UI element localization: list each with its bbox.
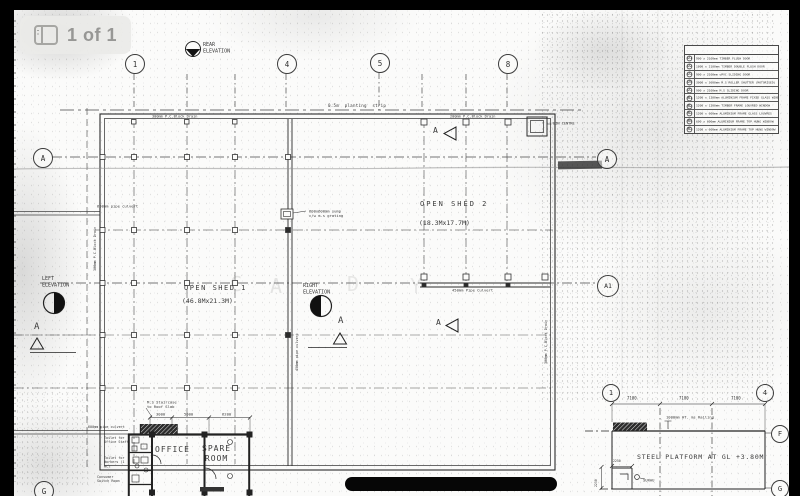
scan-artifacts	[14, 10, 789, 390]
page-indicator-text: 1 of 1	[67, 25, 117, 46]
legend-row: D3900 x 2100mm uPVC SLIDING DOOR	[685, 71, 778, 79]
redaction-bar	[345, 477, 557, 491]
section-markers	[30, 42, 458, 353]
legend-row: W21200 x 1200mm TIMBER FRAME LOUVRED WIN…	[685, 102, 778, 110]
letterbox-top	[0, 0, 800, 10]
door-window-schedule: DOOR & WINDOW SCHEDULE D1900 x 2100mm TI…	[684, 45, 779, 134]
legend-row: W31200 x 600mm ALUMINIUM FRAME GLASS LOU…	[685, 110, 778, 118]
shed2-details	[281, 117, 552, 287]
letterbox-left	[0, 0, 14, 496]
office-block	[128, 408, 252, 496]
legend-row: W11200 x 1200mm ALUMINIUM FRAME FIXED GL…	[685, 94, 778, 102]
legend-row: D43000 x 3600mm M.S ROLLER SHUTTER (MOTO…	[685, 79, 778, 87]
drawing-viewer: REAR ELEVATION0.5m planting strip300mm P…	[0, 0, 800, 496]
steel-platform	[585, 402, 771, 496]
page-indicator[interactable]: 1 of 1	[20, 16, 131, 54]
legend-row: W4600 x 600mm ALUMINIUM FRAME TOP HUNG W…	[685, 118, 778, 126]
legend-rows: D1900 x 2100mm TIMBER FLUSH DOORD21800 x…	[685, 55, 778, 133]
letterbox-right	[789, 0, 800, 496]
grid-lines	[14, 73, 596, 464]
schedule-title: DOOR & WINDOW SCHEDULE	[685, 46, 778, 55]
legend-row: D21800 x 2100mm TIMBER DOUBLE FLUSH DOOR	[685, 63, 778, 71]
plan-linework	[0, 0, 800, 496]
legend-row: W51200 x 600mm ALUMINIUM FRAME TOP HUNG …	[685, 126, 778, 133]
columns	[100, 119, 548, 391]
pages-icon	[34, 25, 58, 45]
legend-row: D1900 x 2100mm TIMBER FLUSH DOOR	[685, 55, 778, 63]
legend-row: D5900 x 2100mm M.S SLIDING DOOR	[685, 87, 778, 95]
